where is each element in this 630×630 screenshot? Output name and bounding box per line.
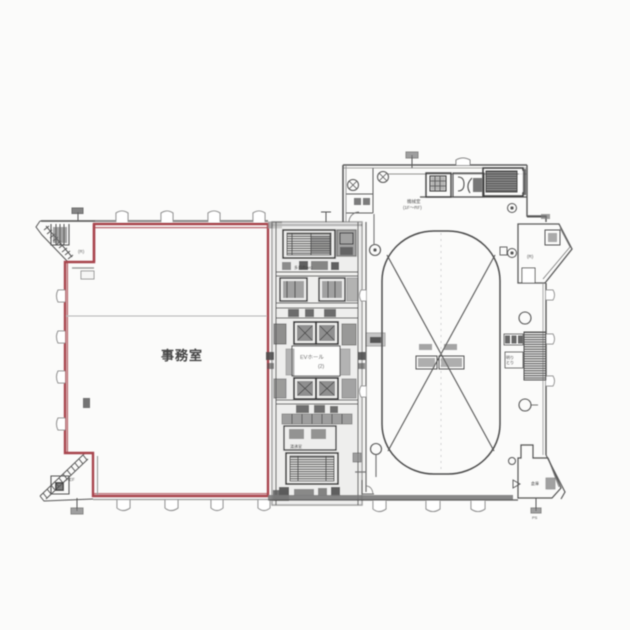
svg-text:AEF: AEF [66, 477, 75, 482]
svg-text:(1F〜RF): (1F〜RF) [403, 205, 422, 210]
svg-text:機械室: 機械室 [407, 198, 421, 205]
svg-text:多目的WC: 多目的WC [294, 264, 313, 270]
svg-text:とり: とり [506, 359, 514, 365]
svg-text:PS: PS [532, 515, 538, 520]
svg-text:(R): (R) [527, 254, 534, 259]
svg-text:(2): (2) [318, 364, 324, 370]
svg-text:EVホール: EVホール [300, 354, 324, 361]
svg-text:事務室: 事務室 [161, 348, 203, 363]
svg-text:(R): (R) [78, 249, 85, 254]
svg-text:倉庫: 倉庫 [531, 480, 539, 486]
svg-text:湯沸室: 湯沸室 [290, 443, 302, 449]
